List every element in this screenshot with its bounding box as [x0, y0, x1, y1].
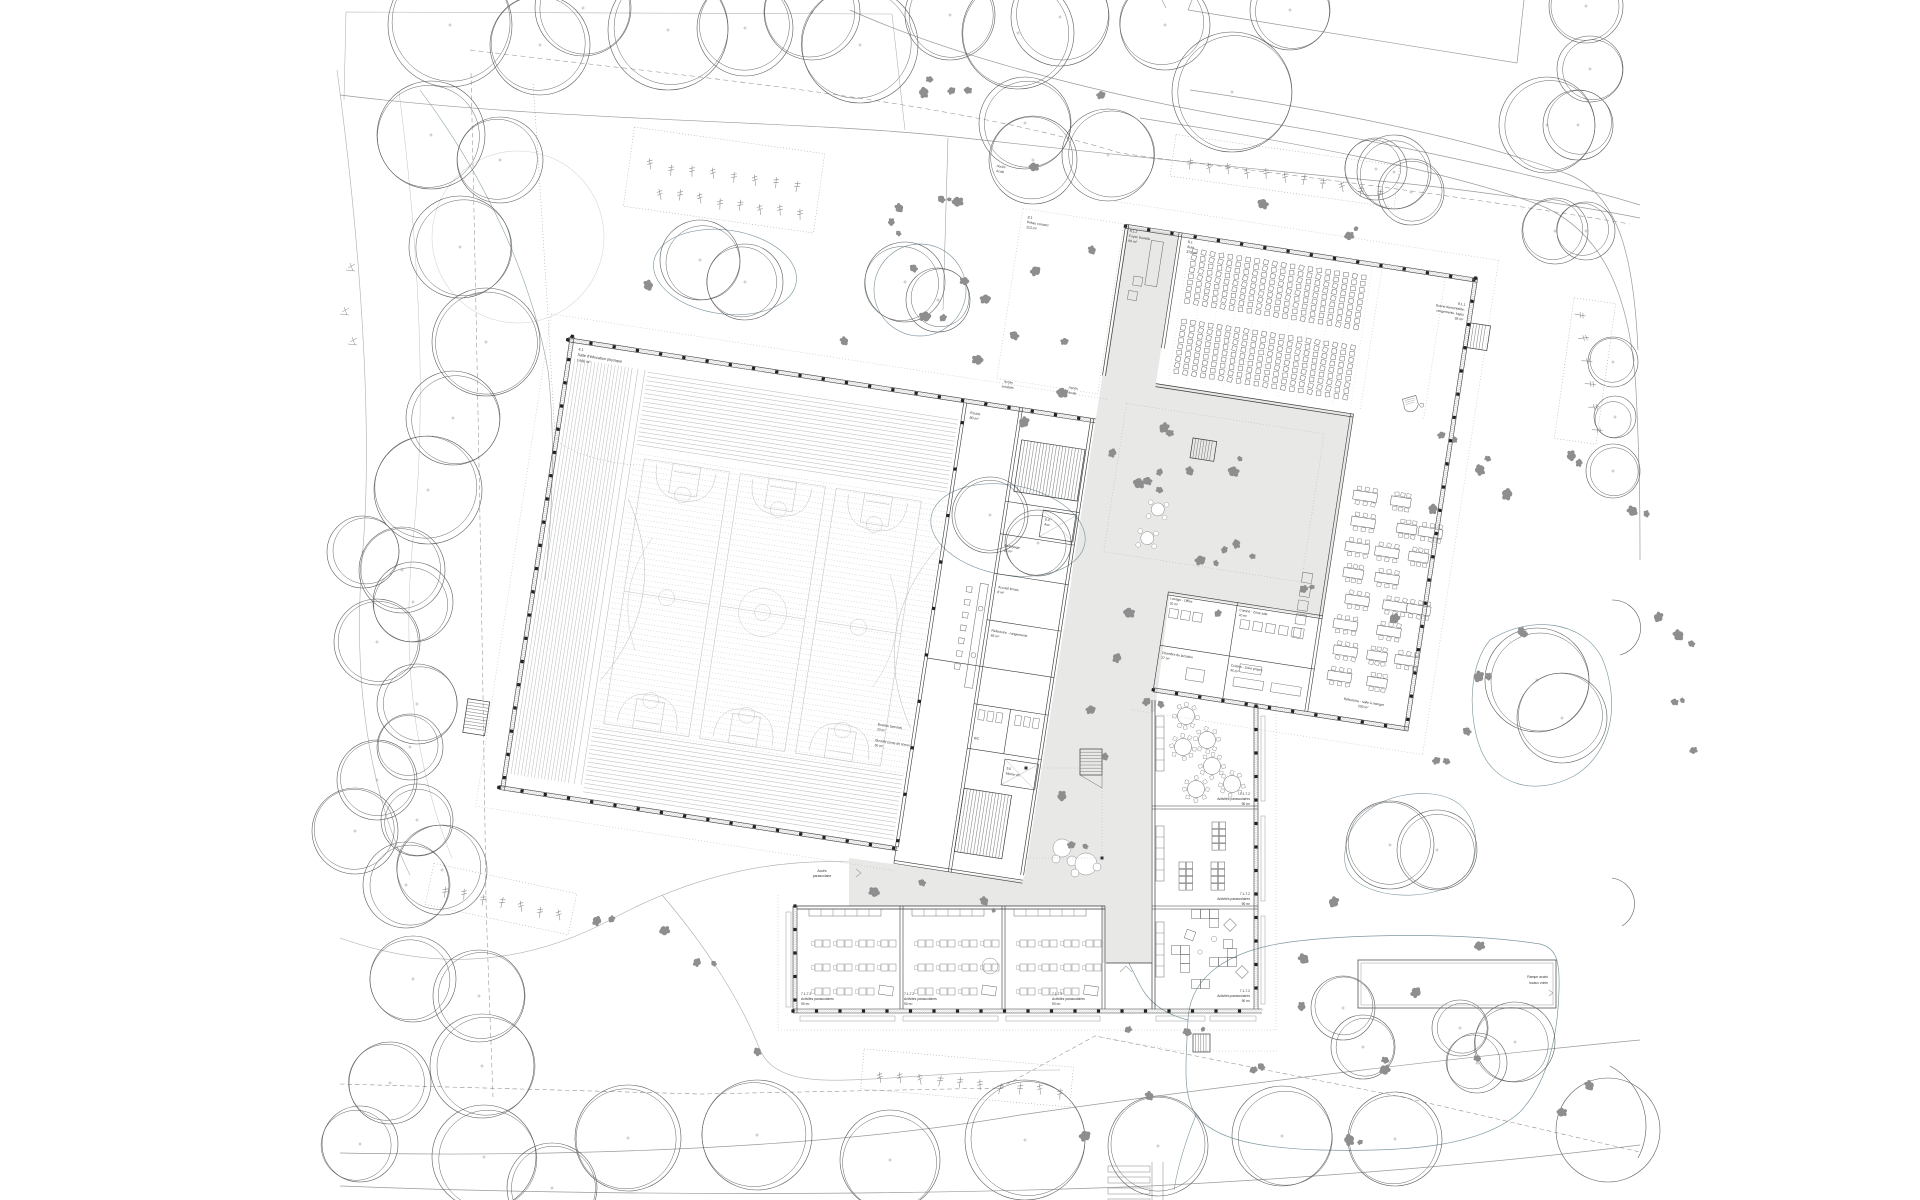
- svg-text:8.1: 8.1: [1027, 215, 1032, 220]
- svg-text:7.1-7.2: 7.1-7.2: [801, 992, 811, 996]
- svg-text:Activités parascolaires: Activités parascolaires: [1217, 797, 1250, 801]
- svg-text:5.4: 5.4: [1045, 517, 1050, 522]
- svg-text:7.1-7.2: 7.1-7.2: [1240, 892, 1250, 896]
- svg-text:Activités parascolaires: Activités parascolaires: [1217, 897, 1250, 901]
- svg-text:Activités parascolaires: Activités parascolaires: [1217, 994, 1250, 998]
- svg-text:parascolaire: parascolaire: [813, 874, 832, 878]
- svg-text:Accès: Accès: [817, 869, 827, 873]
- svg-text:Activités parascolaires: Activités parascolaires: [801, 997, 834, 1001]
- svg-text:locaux voirie: locaux voirie: [1529, 981, 1548, 985]
- svg-text:90 m²: 90 m²: [1242, 802, 1251, 806]
- svg-text:5.5: 5.5: [1006, 766, 1011, 771]
- svg-text:Rampe accès: Rampe accès: [1527, 975, 1548, 979]
- svg-text:90 m²: 90 m²: [1242, 999, 1251, 1003]
- svg-text:90 m²: 90 m²: [904, 1002, 913, 1006]
- svg-text:4.1: 4.1: [578, 347, 584, 352]
- svg-text:8.1: 8.1: [1188, 240, 1194, 245]
- svg-text:90 m²: 90 m²: [801, 1002, 810, 1006]
- svg-text:7.1-7.2: 7.1-7.2: [1240, 792, 1250, 796]
- svg-text:Activités parascolaires: Activités parascolaires: [1052, 997, 1085, 1001]
- svg-text:7.1-7.2: 7.1-7.2: [1052, 992, 1062, 996]
- svg-text:90 m²: 90 m²: [1052, 1002, 1061, 1006]
- svg-text:90 m²: 90 m²: [1242, 902, 1251, 906]
- svg-text:7.1-7.2: 7.1-7.2: [1240, 989, 1250, 993]
- svg-text:Activités parascolaires: Activités parascolaires: [904, 997, 937, 1001]
- svg-text:7.1-7.2: 7.1-7.2: [904, 992, 914, 996]
